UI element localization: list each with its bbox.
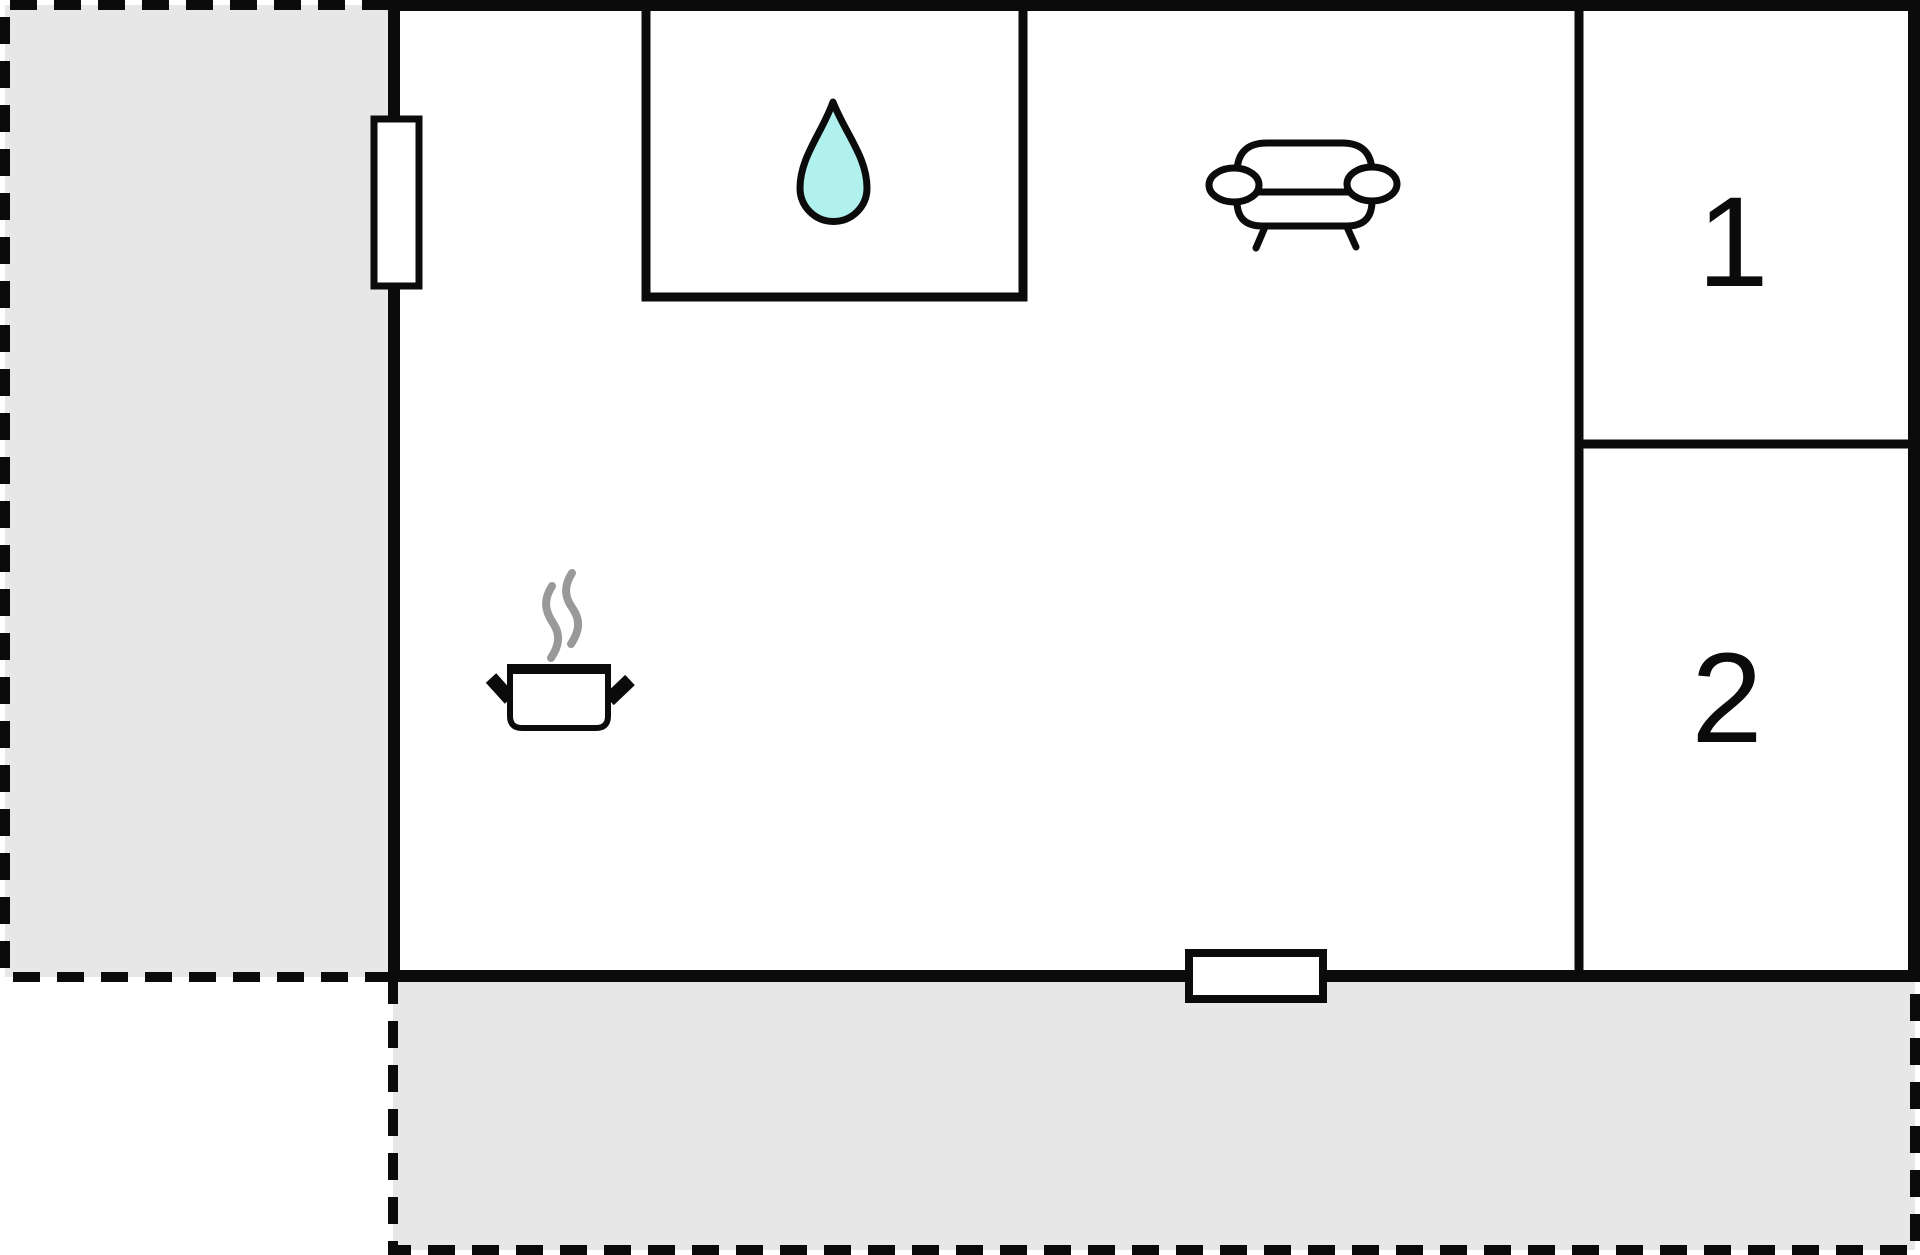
room-2-label: 2 <box>1691 627 1762 770</box>
room-1-label: 1 <box>1697 171 1768 314</box>
pot-body <box>510 669 608 728</box>
window-left-icon <box>374 119 419 286</box>
terrace-bottom-area <box>393 977 1915 1250</box>
sofa-armrest-right <box>1347 167 1397 201</box>
sofa-armrest-left <box>1209 168 1259 202</box>
floor-plan-canvas: 1 2 <box>0 0 1920 1255</box>
building-outline <box>394 5 1914 976</box>
window-bottom-icon <box>1189 953 1323 999</box>
terrace-left-area <box>5 5 389 977</box>
floor-plan: 1 2 <box>0 0 1920 1255</box>
